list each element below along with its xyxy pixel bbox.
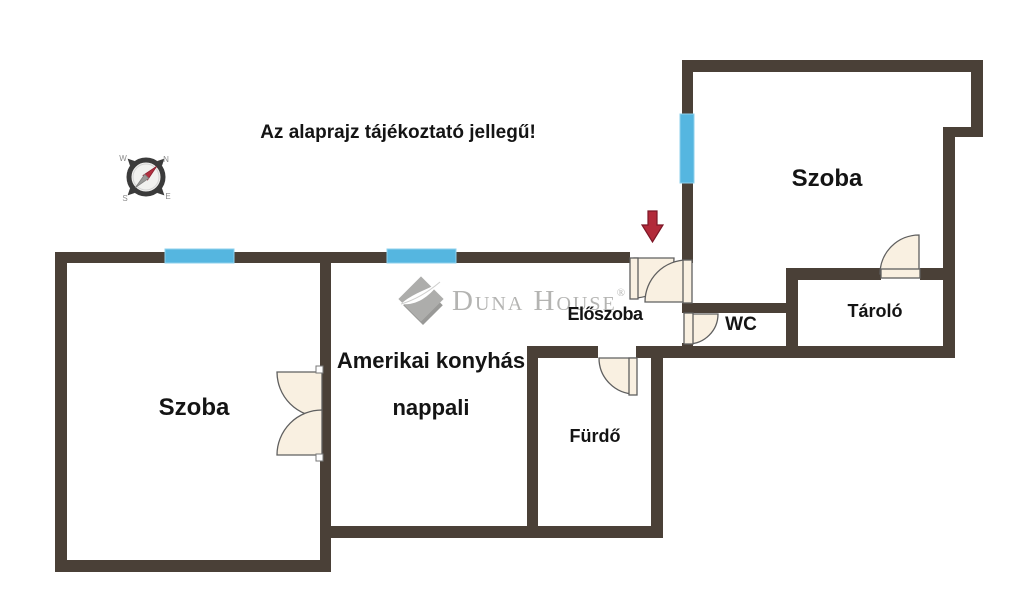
wall-segment — [786, 268, 881, 280]
compass-west-label: W — [119, 154, 127, 163]
compass-north-label: N — [163, 155, 169, 164]
floorplan-canvas: Duna House® — [0, 0, 1024, 608]
wall-segment — [55, 252, 67, 572]
wall-segment — [651, 358, 663, 538]
wall-segment — [682, 303, 794, 313]
wall-segment — [943, 127, 955, 357]
room-label-nappali-line2: nappali — [337, 384, 525, 431]
room-label-eloszoba: Előszoba — [567, 305, 642, 325]
wall-segment — [682, 343, 693, 357]
wall-segment — [920, 268, 943, 280]
room-label-wc: WC — [725, 315, 757, 336]
bathroom-door-icon — [599, 358, 637, 395]
storage-door-icon — [880, 235, 920, 278]
room-label-szoba-left: Szoba — [159, 395, 230, 421]
wall-segment — [527, 346, 538, 538]
window-icon — [165, 249, 234, 263]
compass-icon: N E S W — [109, 140, 183, 214]
wall-segment — [971, 60, 983, 137]
wc-door-icon — [684, 313, 718, 344]
compass-east-label: E — [165, 192, 170, 201]
room-label-nappali: Amerikai konyhás nappali — [337, 337, 525, 431]
compass-south-label: S — [122, 194, 127, 203]
entrance-arrow-icon — [642, 211, 663, 242]
wall-segment — [55, 560, 327, 572]
wall-segment — [682, 60, 983, 72]
duna-house-logo-diamond-icon — [398, 276, 443, 325]
window-icon — [680, 114, 694, 183]
window-icon — [387, 249, 456, 263]
room-label-tarolo: Tároló — [847, 302, 902, 322]
room-label-szoba-right: Szoba — [792, 166, 863, 192]
disclaimer-text: Az alaprajz tájékoztató jellegű! — [260, 123, 536, 144]
room-label-furdo: Fürdő — [570, 427, 621, 447]
wall-segment — [55, 252, 630, 263]
wall-segment — [320, 526, 663, 538]
double-door-icon — [277, 366, 323, 461]
room-label-nappali-line1: Amerikai konyhás — [337, 337, 525, 384]
wall-segment — [650, 346, 955, 358]
